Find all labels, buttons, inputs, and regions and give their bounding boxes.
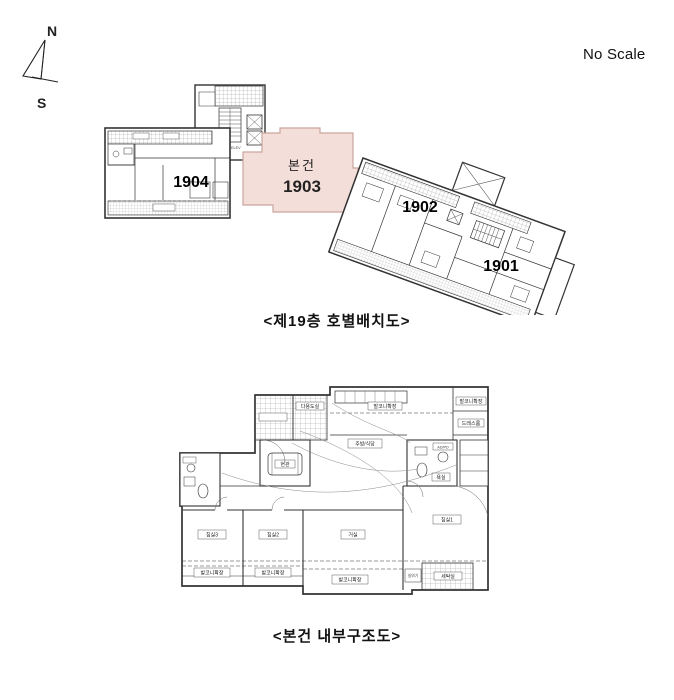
unit-1904-plan <box>105 128 230 218</box>
room-label-bath: 욕실 <box>436 474 446 481</box>
floor-plan-unit-layout: ELEV 1904 본건 1903 <box>95 70 575 315</box>
subject-unit-number: 1903 <box>283 177 321 196</box>
floor-plan-subject-interior: 다용도실 발코니확장 주방/식당 발코니확장 드레스룸 AD/PD 욕실 <box>160 373 520 618</box>
room-label-balcony-ext-living: 발코니확장 <box>338 577 361 584</box>
room-label-outdoor-unit: 실외기 <box>408 573 418 578</box>
compass-north-label: N <box>47 23 57 39</box>
room-label-bedroom3: 침실3 <box>206 532 218 539</box>
room-label-entry: 현관 <box>280 461 290 468</box>
room-label-balcony-ext-tr: 발코니확장 <box>459 398 482 405</box>
room-label-kitchen: 주방/식당 <box>355 441 375 448</box>
elevator-label: ELEV <box>231 146 241 150</box>
right-wing-plan <box>329 130 575 315</box>
room-label-living: 거실 <box>348 532 358 539</box>
compass-arrow-icon <box>23 40 58 82</box>
room-label-bedroom1: 침실1 <box>441 517 453 524</box>
room-label-balcony-ext-b3: 발코니확장 <box>200 570 223 577</box>
caption-floor-layout: <제19층 호별배치도> <box>0 310 674 331</box>
room-label-laundry: 세탁실 <box>441 573 455 580</box>
subject-unit-prefix: 본건 <box>288 158 316 173</box>
caption-internal-structure: <본건 내부구조도> <box>0 625 674 646</box>
unit-1902-label: 1902 <box>402 199 438 216</box>
room-label-balcony-ext-b2: 발코니확장 <box>261 570 284 577</box>
unit-1901-label: 1901 <box>483 258 519 275</box>
unit-1904-label: 1904 <box>173 174 209 191</box>
room-label-utility: 다용도실 <box>301 403 320 410</box>
utility-rooms: 다용도실 <box>255 395 327 440</box>
compass-icon: N S <box>14 8 94 123</box>
room-label-balcony-ext-kitchen: 발코니확장 <box>373 403 396 410</box>
label-ad-pd: AD/PD <box>437 446 449 450</box>
compass-south-label: S <box>37 95 46 111</box>
entry-area: 현관 <box>260 440 310 486</box>
room-label-bedroom2: 침실2 <box>267 532 279 539</box>
scale-note: No Scale <box>583 46 645 63</box>
bathroom-right: AD/PD 욕실 <box>407 440 488 486</box>
room-label-dress: 드레스룸 <box>462 420 481 427</box>
